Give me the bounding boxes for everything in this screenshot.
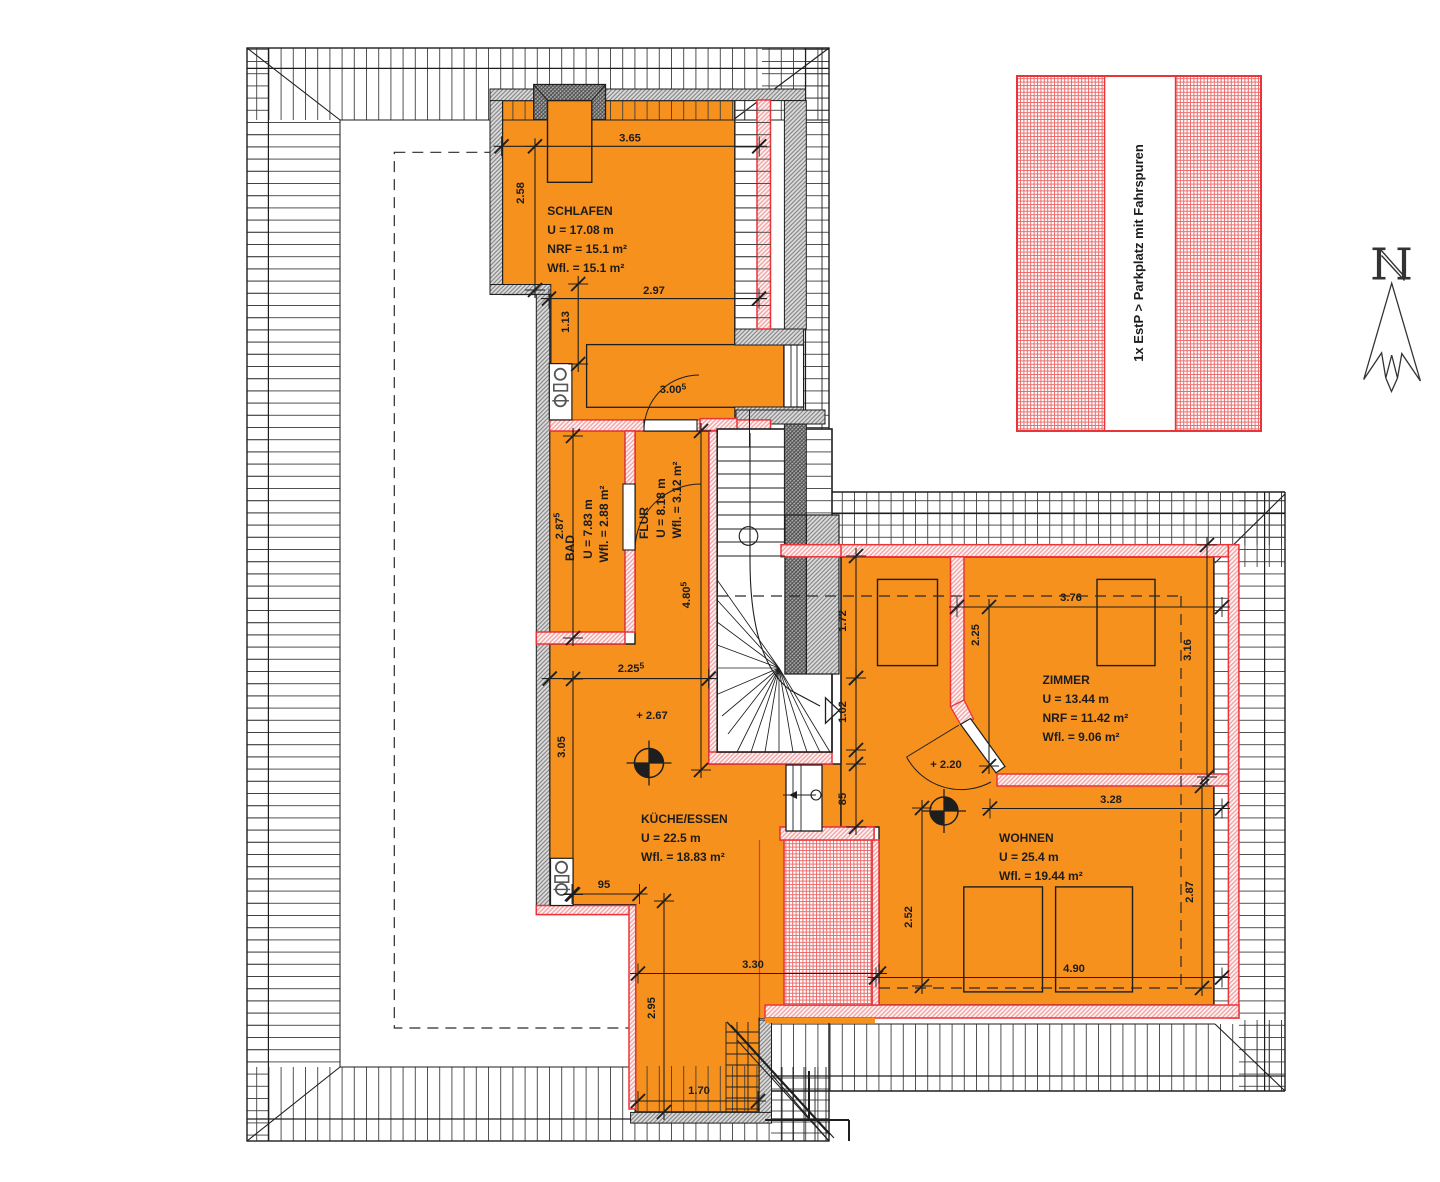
svg-text:NRF = 11.42 m²: NRF = 11.42 m² [1043, 711, 1129, 725]
svg-text:2.58: 2.58 [515, 182, 527, 204]
svg-text:2.52: 2.52 [903, 906, 915, 928]
svg-text:3.05: 3.05 [556, 736, 568, 758]
svg-text:Wfl. = 19.44 m²: Wfl. = 19.44 m² [999, 869, 1083, 883]
svg-text:2.97: 2.97 [643, 285, 665, 297]
svg-text:1x EstP > Parkplatz mit Fahrsp: 1x EstP > Parkplatz mit Fahrspuren [1131, 144, 1146, 362]
svg-text:85: 85 [837, 793, 849, 805]
svg-text:ZIMMER: ZIMMER [1043, 673, 1091, 687]
svg-text:U = 22.5 m: U = 22.5 m [641, 831, 701, 845]
svg-text:+ 2.67: + 2.67 [636, 710, 667, 722]
svg-text:Wfl. = 18.83 m²: Wfl. = 18.83 m² [641, 850, 725, 864]
svg-text:U = 13.44 m: U = 13.44 m [1043, 692, 1109, 706]
svg-text:SCHLAFEN: SCHLAFEN [547, 204, 612, 218]
svg-text:4.90: 4.90 [1063, 963, 1085, 975]
svg-text:FLUR: FLUR [637, 507, 651, 539]
svg-text:NRF = 15.1 m²: NRF = 15.1 m² [547, 242, 627, 256]
svg-text:1.72: 1.72 [837, 610, 849, 632]
svg-text:2.95: 2.95 [646, 997, 658, 1019]
svg-text:3.28: 3.28 [1100, 794, 1122, 806]
svg-text:Wfl. = 9.06 m²: Wfl. = 9.06 m² [1043, 730, 1120, 744]
svg-text:95: 95 [598, 879, 610, 891]
svg-text:3.16: 3.16 [1182, 639, 1194, 661]
svg-text:1.13: 1.13 [560, 311, 572, 333]
svg-text:U = 7.83 m: U = 7.83 m [581, 499, 595, 559]
svg-text:1.02: 1.02 [837, 701, 849, 723]
svg-text:+ 2.20: + 2.20 [930, 759, 961, 771]
svg-text:3.65: 3.65 [619, 133, 641, 145]
svg-text:WOHNEN: WOHNEN [999, 831, 1054, 845]
svg-text:1.70: 1.70 [688, 1085, 710, 1097]
svg-text:Wfl. = 15.1 m²: Wfl. = 15.1 m² [547, 261, 624, 275]
svg-text:Wfl. = 3.12 m²: Wfl. = 3.12 m² [670, 461, 684, 538]
svg-text:Wfl. = 2.88 m²: Wfl. = 2.88 m² [597, 485, 611, 562]
svg-text:2.87: 2.87 [1184, 881, 1196, 903]
svg-text:U = 25.4 m: U = 25.4 m [999, 850, 1059, 864]
svg-text:KÜCHE/ESSEN: KÜCHE/ESSEN [641, 811, 728, 826]
svg-text:3.76: 3.76 [1060, 592, 1082, 604]
svg-text:3.30: 3.30 [742, 959, 764, 971]
svg-text:U = 17.08 m: U = 17.08 m [547, 223, 613, 237]
svg-text:U = 8.18 m: U = 8.18 m [654, 478, 668, 538]
svg-text:2.25: 2.25 [970, 624, 982, 646]
svg-text:BAD: BAD [563, 535, 577, 561]
